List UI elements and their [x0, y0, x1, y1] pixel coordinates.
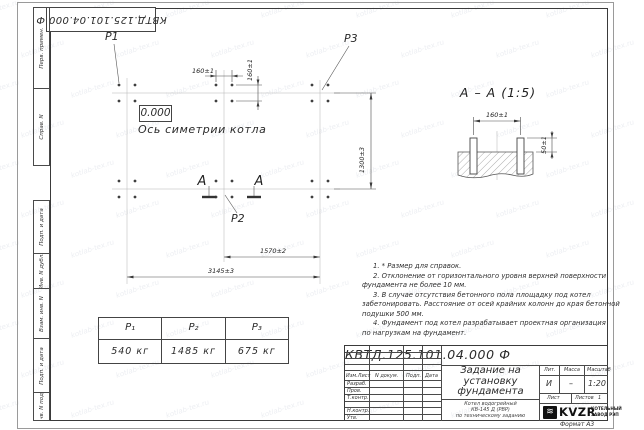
drawing-sheet: kotlab-tex.rukotlab-tex.rukotlab-tex.ruk… [0, 0, 644, 430]
dim-3145: 3145±3 [208, 267, 234, 275]
row-label-razrab: Разраб. [347, 381, 367, 387]
section-cut-marks: А А [197, 174, 264, 197]
grid-line [571, 393, 572, 403]
sheet-label: Лист [547, 395, 560, 401]
note-line: подушки 500 мм. [362, 310, 612, 320]
load-point-p2-label: Р2 [231, 212, 245, 225]
row-label-nkontr: Н.контр. [347, 408, 369, 414]
grid-line [584, 365, 585, 393]
dim-1570: 1570±2 [260, 247, 286, 255]
drawing-subtitle-line: по техническому заданию [442, 413, 539, 419]
load-table-value-row: 540 кг 1485 кг 675 кг [99, 339, 288, 364]
load-table-value: 675 кг [225, 340, 288, 364]
stamp-cell: Подп. и дата [34, 339, 49, 393]
section-letter-left: А [197, 174, 207, 189]
lit-header: Лит. [544, 367, 556, 373]
title-block: КВТД.125.101.04.000 Ф Изм.Лист N докум. … [344, 345, 608, 421]
grid-line [539, 403, 608, 404]
note-line: 3. В случае отсутствия бетонного пола пл… [362, 291, 612, 301]
load-table-header: Р₃ [225, 318, 288, 339]
sheets-value: 1 [598, 395, 601, 401]
stamp-label: Справ. N [39, 114, 45, 139]
col-header-data: Дата [425, 373, 438, 379]
stamp-label: Инв. N подл. [39, 393, 45, 419]
load-table-header: Р₁ [99, 318, 161, 339]
col-header-docnum: N докум. [375, 373, 398, 379]
sheets-label: Листов [575, 395, 594, 401]
note-line: 1. * Размер для справок. [362, 262, 612, 272]
grid-line [539, 375, 608, 376]
grid-line [539, 393, 608, 394]
note-line: 2. Отклонение от горизонтального уровня … [362, 272, 612, 282]
section-title: А – А (1:5) [459, 85, 536, 100]
grid-line [345, 358, 441, 359]
note-line: фундамента не более 10 мм. [362, 281, 612, 291]
col-header-izm-list: Изм.Лист [346, 373, 370, 379]
stamp-cell: Взам. инв. N [34, 289, 49, 339]
logo-caption-line: КОТЕЛЬНЫЙ [591, 406, 622, 412]
kvzr-logo-icon: ≋ [543, 406, 557, 419]
load-table-header: Р₂ [161, 318, 224, 339]
doc-number-box: КВТД.125.101.04.000 Ф [46, 7, 156, 32]
margin-strip-bottom: Подп. и дата Инв. N дубл. Взам. инв. N П… [33, 200, 50, 421]
stamp-label: Подп. и дата [39, 208, 45, 245]
stamp-label: Взам. инв. N [39, 296, 45, 332]
scale-header: Масштаб [587, 367, 611, 373]
grid-line [403, 346, 404, 421]
anchor-bolt-points [118, 84, 330, 199]
grid-line [539, 365, 540, 421]
stamp-cell: Инв. N подл. [34, 393, 49, 419]
load-table-value: 1485 кг [161, 340, 224, 364]
grid-line [422, 346, 423, 421]
load-table: Р₁ Р₂ Р₃ 540 кг 1485 кг 675 кг [98, 317, 289, 364]
kvzr-logo-caption: КОТЕЛЬНЫЙ ЗАВОД РЭП [591, 406, 622, 417]
load-table-value: 540 кг [99, 340, 161, 364]
col-header-podp: Подп. [406, 373, 421, 379]
load-point-p3-label: Р3 [344, 32, 358, 45]
row-label-tkontr: Т.контр. [347, 395, 369, 401]
stamp-cell: Подп. и дата [34, 201, 49, 254]
elevation-mark: 0.000 [139, 105, 172, 122]
note-line: по нагрузкам на фундамент. [362, 329, 612, 339]
notes-block: 1. * Размер для справок. 2. Отклонение о… [362, 262, 612, 338]
row-label-prov: Пров. [347, 388, 362, 394]
grid-line [345, 401, 441, 402]
section-letter-right: А [254, 174, 264, 189]
stamp-cell: Перв. примен. [34, 8, 49, 89]
load-table-header-row: Р₁ Р₂ Р₃ [99, 318, 288, 339]
section-dim-160: 160±1 [486, 111, 508, 119]
margin-strip-top: Перв. примен. Справ. N [33, 7, 50, 166]
doc-number-rotated: КВТД.125.101.04.000 Ф [36, 14, 167, 25]
stamp-label: Перв. примен. [39, 27, 45, 68]
stamp-label: Подп. и дата [39, 347, 45, 384]
drawing-title: Задание на установку фундамента [442, 366, 539, 398]
mass-header: Масса [564, 367, 580, 373]
drawing-subtitle: Котел водогрейный КВ-145 Д (РВР) по техн… [442, 401, 539, 420]
lit-value: И [546, 379, 552, 388]
grid-line [345, 414, 441, 415]
drawing-title-line: Задание на [442, 366, 539, 377]
logo-caption-line: ЗАВОД РЭП [591, 412, 622, 418]
format-label: Формат А3 [560, 421, 594, 428]
stamp-cell: Справ. N [34, 89, 49, 164]
note-line: 4. Фундамент под котел разрабатывает про… [362, 319, 612, 329]
dim-1300: 1300±3 [358, 147, 366, 173]
row-label-utv: Утв. [347, 415, 358, 421]
section-view: А – А (1:5) 160±1 50±1 [458, 85, 557, 180]
scale-value: 1:20 [588, 379, 606, 388]
grid-line [345, 370, 441, 371]
drawing-title-line: фундамента [442, 387, 539, 398]
stamp-label: Инв. N дубл. [39, 254, 45, 289]
plan-centerlines [112, 70, 340, 284]
grid-line [345, 364, 441, 365]
load-point-p1-label: Р1 [105, 30, 119, 43]
note-line: забетонировать. Расстояние от осей крайн… [362, 300, 612, 310]
grid-line [345, 352, 441, 353]
grid-line [441, 399, 539, 400]
stamp-cell: Инв. N дубл. [34, 254, 49, 289]
dim-160-vertical: 160±1 [246, 59, 254, 81]
dim-160-horizontal: 160±1 [192, 67, 214, 75]
mass-value: – [569, 379, 573, 388]
grid-line [559, 365, 560, 393]
boiler-axis-label: Ось симетрии котла [138, 123, 267, 136]
plan-dimensions [127, 70, 376, 277]
section-dim-50: 50±1 [540, 136, 548, 154]
